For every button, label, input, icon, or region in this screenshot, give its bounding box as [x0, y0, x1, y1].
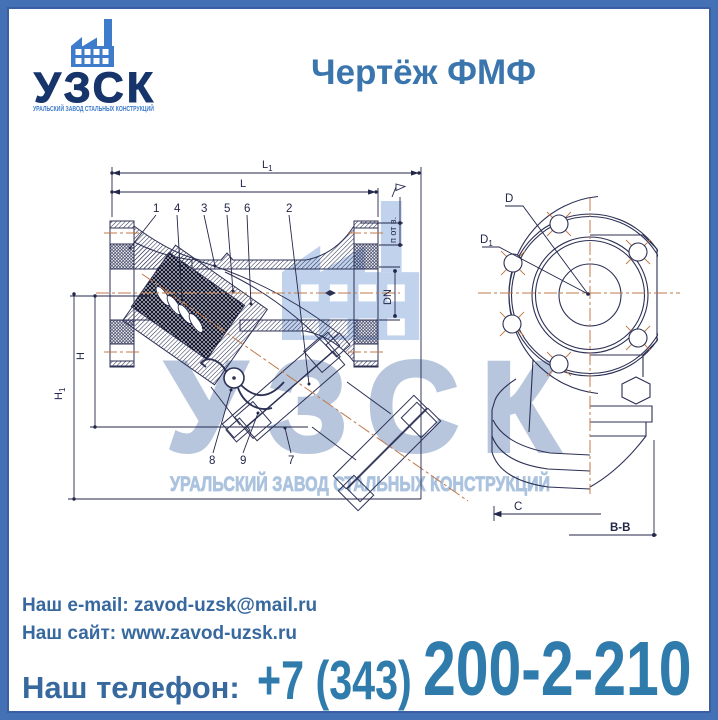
- svg-text:1: 1: [153, 203, 159, 215]
- svg-text:2: 2: [286, 203, 292, 215]
- svg-text:5: 5: [224, 203, 230, 215]
- svg-text:7: 7: [288, 455, 294, 467]
- svg-text:п от в.: п от в.: [388, 217, 398, 243]
- svg-text:4: 4: [174, 203, 181, 215]
- svg-text:C: C: [514, 501, 522, 513]
- svg-text:DN: DN: [382, 289, 394, 305]
- svg-text:D: D: [505, 193, 513, 205]
- svg-text:H1: H1: [53, 387, 67, 400]
- svg-text:9: 9: [240, 455, 246, 467]
- svg-text:D1: D1: [480, 234, 493, 248]
- svg-text:6: 6: [244, 203, 250, 215]
- svg-text:В-В: В-В: [610, 522, 630, 534]
- svg-text:L: L: [240, 178, 246, 190]
- svg-text:H: H: [75, 352, 87, 360]
- svg-text:8: 8: [209, 455, 215, 467]
- svg-text:L1: L1: [262, 159, 273, 173]
- svg-text:3: 3: [201, 203, 207, 215]
